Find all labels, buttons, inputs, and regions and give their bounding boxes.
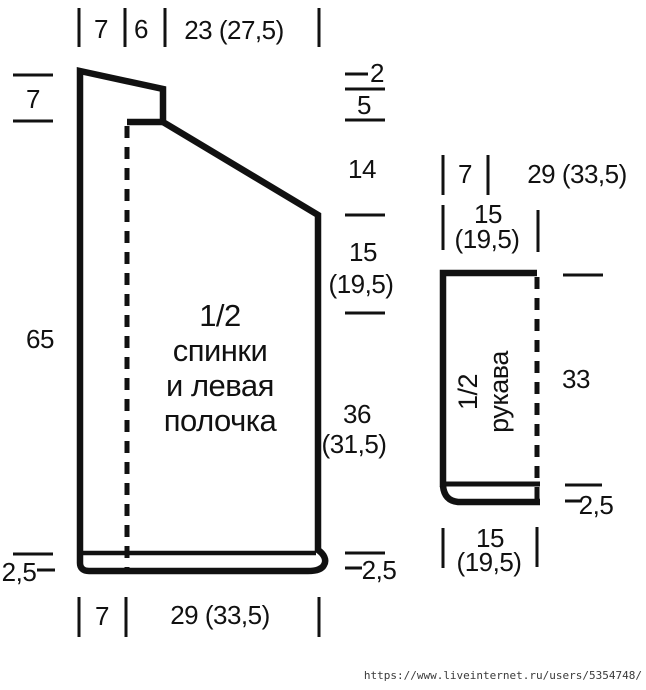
main-top-shoulder-measure: 23 (27,5) (184, 17, 284, 43)
sleeve-title: 1/2 рукава (453, 351, 515, 433)
main-right-armhole-alt-measure: (19,5) (329, 271, 394, 297)
main-right-slope-height-measure: 14 (348, 156, 376, 182)
main-right-armhole-measure: 15 (349, 239, 377, 265)
pattern-drawing (0, 0, 646, 690)
main-piece-title-line1: 1/2 (164, 298, 276, 333)
sleeve-upper-width-alt-measure: (19,5) (455, 226, 520, 252)
sleeve-cuff-bottom-line (443, 486, 540, 502)
main-bottom-width-measure: 29 (33,5) (170, 602, 270, 628)
knitting-pattern-diagram: 7 6 23 (27,5) 7 65 2,5 2 5 14 15 (19,5) … (0, 0, 646, 690)
main-piece-title-line4: полочка (164, 403, 276, 438)
main-right-neck-step-height-measure: 5 (357, 92, 371, 118)
sleeve-top-width-measure: 29 (33,5) (527, 161, 627, 187)
main-right-side-measure: 36 (343, 401, 371, 427)
sleeve-top-inset-measure: 7 (458, 161, 472, 187)
main-right-side-alt-measure: (31,5) (322, 431, 387, 457)
source-url: https://www.liveinternet.ru/users/535474… (364, 670, 642, 681)
sleeve-bottom-width-alt-measure: (19,5) (457, 549, 522, 575)
main-right-hem-measure: 2,5 (362, 557, 397, 583)
main-right-neck-step-width-measure: 2 (370, 60, 384, 86)
sleeve-cuff-measure: 2,5 (579, 492, 614, 518)
main-bottom-band-measure: 7 (95, 603, 109, 629)
main-top-neck-measure: 6 (134, 16, 148, 42)
main-left-hem-measure: 2,5 (2, 559, 37, 585)
sleeve-title-line1: 1/2 (453, 351, 484, 433)
main-piece-title: 1/2 спинки и левая полочка (164, 298, 276, 438)
main-left-length-measure: 65 (26, 326, 54, 352)
main-left-shoulder-drop-measure: 7 (26, 86, 40, 112)
main-piece-title-line3: и левая (164, 368, 276, 403)
main-top-band-measure: 7 (94, 16, 108, 42)
sleeve-length-measure: 33 (562, 366, 590, 392)
sleeve-title-line2: рукава (484, 351, 515, 433)
main-piece-title-line2: спинки (164, 333, 276, 368)
